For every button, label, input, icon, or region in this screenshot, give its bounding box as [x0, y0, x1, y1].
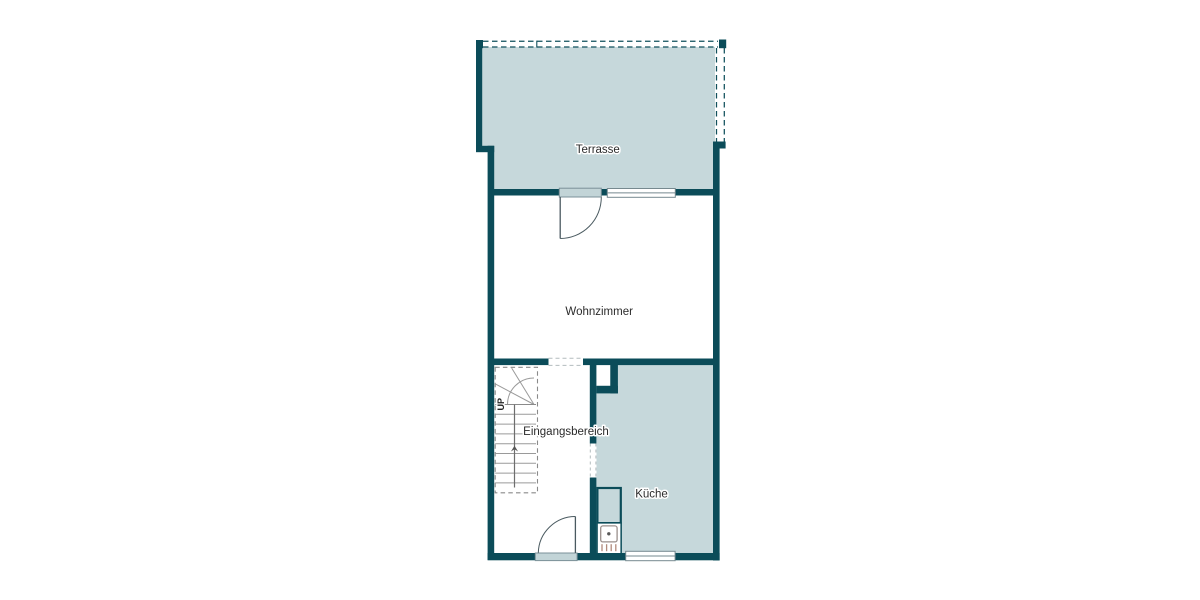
svg-text:UP: UP: [496, 398, 506, 411]
svg-text:Eingangsbereich: Eingangsbereich: [523, 426, 609, 438]
svg-text:Küche: Küche: [635, 489, 668, 501]
svg-text:Terrasse: Terrasse: [576, 144, 620, 156]
svg-text:Wohnzimmer: Wohnzimmer: [565, 306, 633, 318]
